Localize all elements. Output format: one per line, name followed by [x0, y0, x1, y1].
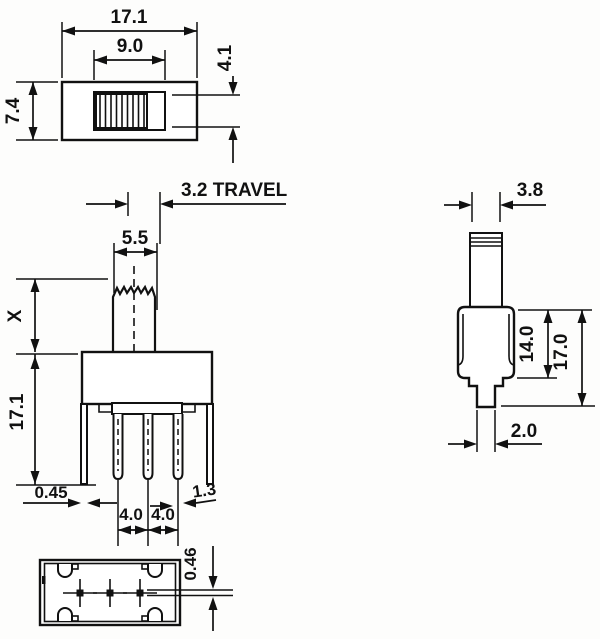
- side-knob-outline: [470, 233, 502, 307]
- dim-label-front-body-height: 17.1: [7, 393, 28, 430]
- front-terminal-pins: [114, 414, 183, 479]
- dim-front-pin-pitch: 4.0 4.0: [118, 480, 178, 546]
- dim-label-side-terminal-width: 2.0: [511, 421, 537, 442]
- bottom-left-wall-tick: [42, 576, 46, 584]
- dim-top-slot-width: 9.0: [94, 36, 165, 80]
- front-body-outline: [82, 352, 212, 404]
- dim-front-travel: 3.2 TRAVEL: [86, 180, 288, 244]
- bottom-view: 0.46: [40, 546, 233, 631]
- dim-label-top-knob-depth: 4.1: [215, 44, 236, 71]
- dim-front-knob-height: X: [5, 279, 108, 352]
- dim-front-terminal-width: 1.3: [150, 480, 217, 511]
- dim-top-body-depth: 7.4: [3, 82, 58, 140]
- dim-label-front-travel: 3.2 TRAVEL: [181, 180, 288, 201]
- dim-front-knob-width: 5.5: [114, 228, 157, 310]
- technical-drawing: 17.1 9.0 7.4 4.1: [0, 0, 600, 639]
- dim-label-side-knob-thickness: 3.8: [517, 180, 543, 201]
- dim-side-terminal-width: 2.0: [448, 410, 542, 452]
- dim-side-knob-thickness: 3.8: [444, 180, 546, 222]
- front-view: 3.2 TRAVEL 5.5 X: [5, 180, 288, 546]
- dim-label-front-bracket-thickness: 0.45: [34, 483, 67, 502]
- top-view: 17.1 9.0 7.4 4.1: [3, 7, 240, 163]
- dim-front-bracket-thickness: 0.45: [23, 483, 117, 508]
- dim-label-top-overall-width: 17.1: [111, 7, 148, 28]
- side-view: 3.8 14.0 17.0: [444, 180, 595, 452]
- front-left-bracket-tab: [81, 404, 87, 484]
- dim-label-bottom-terminal-thickness: 0.46: [181, 547, 200, 580]
- dim-label-front-pin-pitch-left: 4.0: [119, 505, 143, 524]
- dim-label-top-body-depth: 7.4: [3, 97, 24, 124]
- dim-label-top-slot-width: 9.0: [117, 36, 143, 57]
- side-body-outline: [458, 307, 514, 407]
- drawing-sheet: 17.1 9.0 7.4 4.1: [0, 0, 600, 639]
- dim-label-front-terminal-width: 1.3: [191, 480, 217, 502]
- dim-label-side-overall-height: 17.0: [551, 334, 572, 371]
- dim-label-side-body-height: 14.0: [517, 326, 538, 363]
- front-right-bracket-tab: [207, 404, 213, 484]
- dim-label-front-knob-height: X: [5, 309, 26, 322]
- dim-label-front-knob-width: 5.5: [122, 228, 149, 249]
- dim-bottom-terminal-thickness: 0.46: [181, 546, 218, 631]
- front-base-plate: [112, 403, 182, 414]
